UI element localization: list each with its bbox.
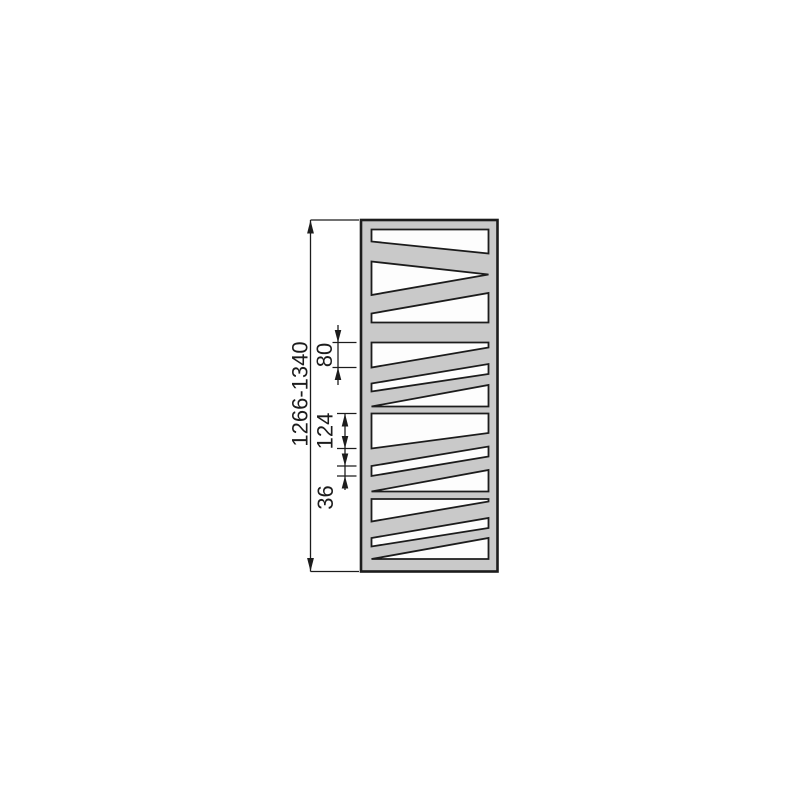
- dimension-36-label: 36: [313, 485, 338, 509]
- radiator-body: [361, 220, 498, 572]
- technical-drawing: 1266-1340 80 124 36: [0, 0, 800, 800]
- overall-height-dimension: 1266-1340: [287, 220, 359, 572]
- dimension-80-label: 80: [312, 343, 337, 367]
- radiator-dimension-diagram: 1266-1340 80 124 36: [0, 0, 800, 800]
- overall-height-label: 1266-1340: [287, 341, 312, 446]
- arrowhead-down-icon: [342, 436, 349, 449]
- dimension-124-36: 124 36: [312, 413, 356, 510]
- arrowhead-up-icon: [307, 220, 314, 234]
- arrowhead-up-icon: [342, 414, 349, 427]
- arrowhead-down-icon: [342, 454, 349, 467]
- dimension-124-label: 124: [312, 413, 337, 450]
- arrowhead-up-icon: [335, 368, 342, 381]
- arrowhead-up-icon: [342, 476, 349, 489]
- arrowhead-down-icon: [335, 330, 342, 343]
- dimension-80: 80: [312, 325, 357, 385]
- arrowhead-down-icon: [307, 558, 314, 572]
